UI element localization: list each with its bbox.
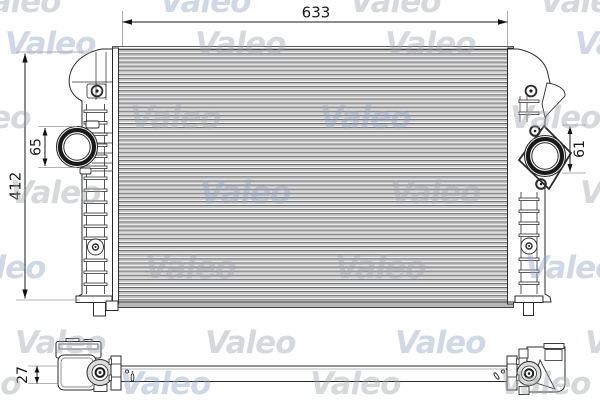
front-view	[57, 47, 572, 317]
dimension-depth: 27	[15, 366, 57, 384]
core	[111, 47, 516, 308]
right-tank	[508, 49, 572, 316]
left-port-dim-label: 65	[29, 138, 45, 156]
left-port	[57, 127, 98, 168]
right-port-dim-label: 61	[572, 140, 588, 158]
dimension-width: 633	[123, 4, 508, 47]
bottom-left-cap	[56, 339, 134, 392]
left-tank	[57, 49, 119, 316]
intercooler-technical-drawing: 633 412 65 61	[0, 0, 600, 400]
drawing-canvas: 633 412 65 61	[0, 0, 600, 400]
height-dim-label: 412	[7, 172, 25, 201]
width-dim-label: 633	[302, 4, 331, 22]
depth-dim-label: 27	[15, 366, 31, 384]
bottom-view	[56, 339, 565, 395]
